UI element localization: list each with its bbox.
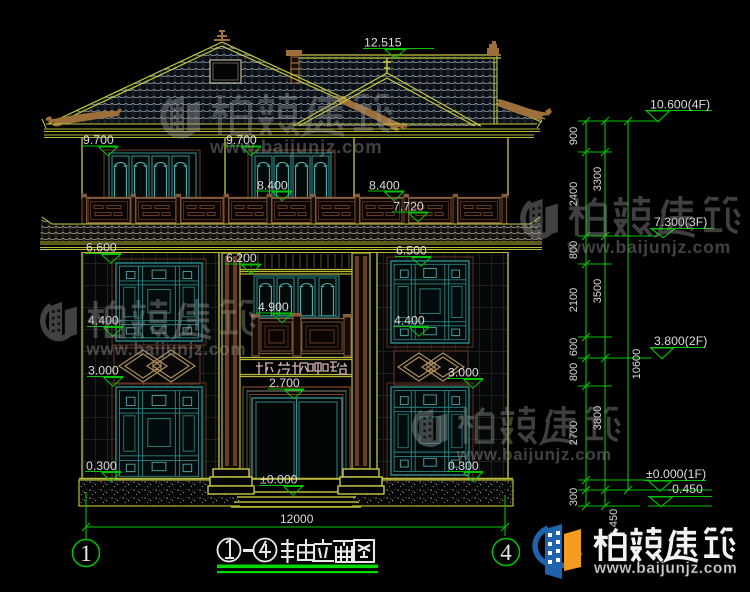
svg-text:2.700: 2.700: [269, 376, 300, 390]
svg-text:6.600: 6.600: [86, 241, 117, 255]
svg-text:0.300: 0.300: [86, 459, 117, 473]
svg-text:8.400: 8.400: [257, 179, 288, 193]
svg-text:8.400: 8.400: [369, 179, 400, 193]
svg-text:3.000: 3.000: [448, 366, 479, 380]
svg-text:10600: 10600: [631, 349, 643, 380]
svg-text:12.515: 12.515: [364, 36, 402, 50]
svg-text:300: 300: [568, 488, 580, 506]
svg-text:±0.000: ±0.000: [260, 473, 298, 487]
svg-text:9.700: 9.700: [83, 133, 114, 147]
svg-text:4.900: 4.900: [258, 300, 289, 314]
svg-text:800: 800: [568, 363, 580, 381]
svg-text:10.600(4F): 10.600(4F): [650, 98, 710, 112]
svg-text:450: 450: [608, 509, 620, 527]
svg-text:6.500: 6.500: [396, 244, 427, 258]
svg-text:600: 600: [568, 338, 580, 356]
svg-text:4: 4: [500, 540, 512, 565]
svg-text:±0.000(1F): ±0.000(1F): [646, 467, 706, 481]
svg-text:7.720: 7.720: [393, 200, 424, 214]
svg-text:-0.450: -0.450: [668, 482, 703, 496]
svg-text:1: 1: [80, 541, 92, 566]
svg-text:12000: 12000: [280, 512, 314, 526]
svg-text:3.800(2F): 3.800(2F): [654, 334, 707, 348]
svg-text:www.baijunjz.com: www.baijunjz.com: [593, 560, 737, 577]
svg-text:900: 900: [568, 127, 580, 145]
svg-text:4.400: 4.400: [394, 314, 425, 328]
svg-text:3300: 3300: [592, 167, 604, 191]
svg-text:3.000: 3.000: [88, 364, 119, 378]
svg-text:6.200: 6.200: [226, 251, 257, 265]
svg-text:3500: 3500: [592, 279, 604, 303]
svg-text:2100: 2100: [568, 288, 580, 312]
